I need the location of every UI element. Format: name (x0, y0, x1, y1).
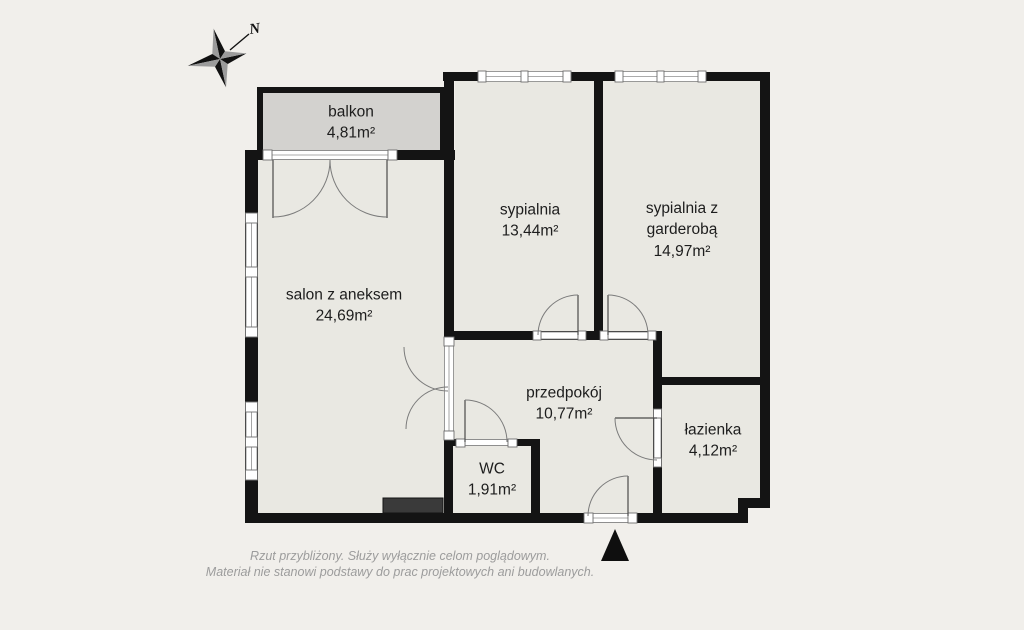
room-label-salon: salon z aneksem 24,69m² (286, 285, 402, 328)
room-label-przedpokoj: przedpokój 10,77m² (526, 383, 602, 426)
compass-needle-line (230, 34, 249, 50)
floor-plan-drawing: N (0, 0, 1024, 630)
floor-plan: N balkon 4,81m² sypialnia 13,44m² sypial… (0, 0, 1024, 630)
disclaimer: Rzut przybliżony. Służy wyłącznie celom … (100, 548, 700, 580)
room-name: sypialnia (500, 200, 560, 221)
wall-notch-side (738, 498, 748, 523)
wall-bedroom-divider (594, 72, 603, 338)
kitchen-block (383, 498, 443, 513)
room-area: 4,12m² (685, 441, 742, 462)
window-salon-lower (246, 402, 258, 480)
room-label-wc: WC 1,91m² (468, 459, 516, 502)
window-bedroom2 (615, 71, 706, 82)
window-salon-upper (246, 213, 258, 337)
room-label-sypialnia-z-garderoba: sypialnia z garderobą 14,97m² (612, 198, 752, 262)
room-name: balkon (327, 102, 375, 123)
room-name: sypialnia z garderobą (612, 198, 752, 241)
room-label-balkon: balkon 4,81m² (327, 102, 375, 145)
room-label-sypialnia: sypialnia 13,44m² (500, 200, 560, 243)
north-label: N (247, 20, 262, 38)
room-area: 1,91m² (468, 480, 516, 501)
room-label-lazienka: łazienka 4,12m² (685, 420, 742, 463)
disclaimer-line2: Materiał nie stanowi podstawy do prac pr… (100, 564, 700, 580)
room-name: WC (468, 459, 516, 480)
wall-bathroom-top (653, 377, 760, 385)
room-area: 10,77m² (526, 404, 602, 425)
room-name: łazienka (685, 420, 742, 441)
wall-right (760, 72, 770, 508)
room-name: przedpokój (526, 383, 602, 404)
room-area: 14,97m² (612, 241, 752, 262)
wall-salon-bedroom (444, 72, 454, 340)
disclaimer-line1: Rzut przybliżony. Służy wyłącznie celom … (100, 548, 700, 564)
wall-wc-right (531, 439, 540, 513)
compass-icon: N (181, 20, 262, 94)
room-area: 24,69m² (286, 306, 402, 327)
room-area: 4,81m² (327, 123, 375, 144)
wall-bottom (245, 513, 748, 523)
room-name: salon z aneksem (286, 285, 402, 306)
window-bedroom1 (478, 71, 571, 82)
room-area: 13,44m² (500, 221, 560, 242)
